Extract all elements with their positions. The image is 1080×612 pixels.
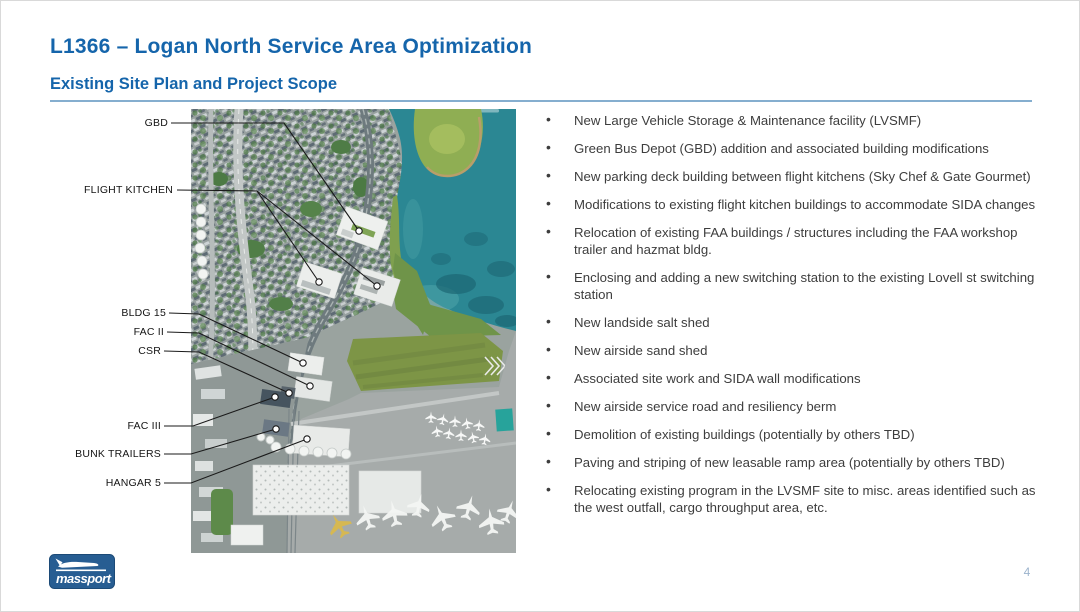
leader-line (167, 332, 310, 386)
logo-text: massport (56, 571, 112, 586)
leader-endpoint (316, 279, 322, 285)
leader-line (164, 397, 275, 426)
scope-item: New Large Vehicle Storage & Maintenance … (543, 112, 1037, 129)
leader-endpoint (273, 426, 279, 432)
leader-endpoint (356, 228, 362, 234)
leader-line (171, 123, 359, 231)
scope-item: Relocating existing program in the LVSMF… (543, 482, 1037, 516)
scope-item: Paving and striping of new leasable ramp… (543, 454, 1037, 471)
scope-item: Demolition of existing buildings (potent… (543, 426, 1037, 443)
leader-line (164, 429, 276, 454)
title-divider (50, 100, 1032, 102)
scope-item: New landside salt shed (543, 314, 1037, 331)
leader-line (164, 439, 307, 483)
slide: L1366 – Logan North Service Area Optimiz… (0, 0, 1080, 612)
map-label-csr: CSR (41, 345, 161, 357)
scope-item: Relocation of existing FAA buildings / s… (543, 224, 1037, 258)
scope-item: Associated site work and SIDA wall modif… (543, 370, 1037, 387)
scope-bullet-list: New Large Vehicle Storage & Maintenance … (543, 112, 1037, 527)
leader-endpoint (300, 360, 306, 366)
scope-item: Modifications to existing flight kitchen… (543, 196, 1037, 213)
leader-endpoint (304, 436, 310, 442)
map-label-fac-ii: FAC II (41, 326, 164, 338)
leader-line (177, 190, 319, 282)
scope-item: New airside service road and resiliency … (543, 398, 1037, 415)
leader-endpoint (307, 383, 313, 389)
leader-line (169, 313, 303, 363)
page-subtitle: Existing Site Plan and Project Scope (50, 75, 337, 94)
map-label-hangar-5: HANGAR 5 (41, 477, 161, 489)
map-label-fac-iii: FAC III (41, 420, 161, 432)
map-label-gbd: GBD (41, 117, 168, 129)
scope-item: Enclosing and adding a new switching sta… (543, 269, 1037, 303)
map-label-bldg-15: BLDG 15 (41, 307, 166, 319)
leader-endpoint (272, 394, 278, 400)
massport-logo: massport (49, 554, 115, 589)
scope-item: Green Bus Depot (GBD) addition and assoc… (543, 140, 1037, 157)
leader-endpoint (286, 390, 292, 396)
map-label-flight-kitchen: FLIGHT KITCHEN (41, 184, 173, 196)
scope-item: New parking deck building between flight… (543, 168, 1037, 185)
leader-line (164, 351, 289, 393)
page-title: L1366 – Logan North Service Area Optimiz… (50, 35, 532, 59)
leader-endpoint (374, 283, 380, 289)
slide-number: 4 (1015, 565, 1039, 579)
scope-item: New airside sand shed (543, 342, 1037, 359)
leader-line (257, 191, 377, 286)
map-label-bunk-trailers: BUNK TRAILERS (41, 448, 161, 460)
